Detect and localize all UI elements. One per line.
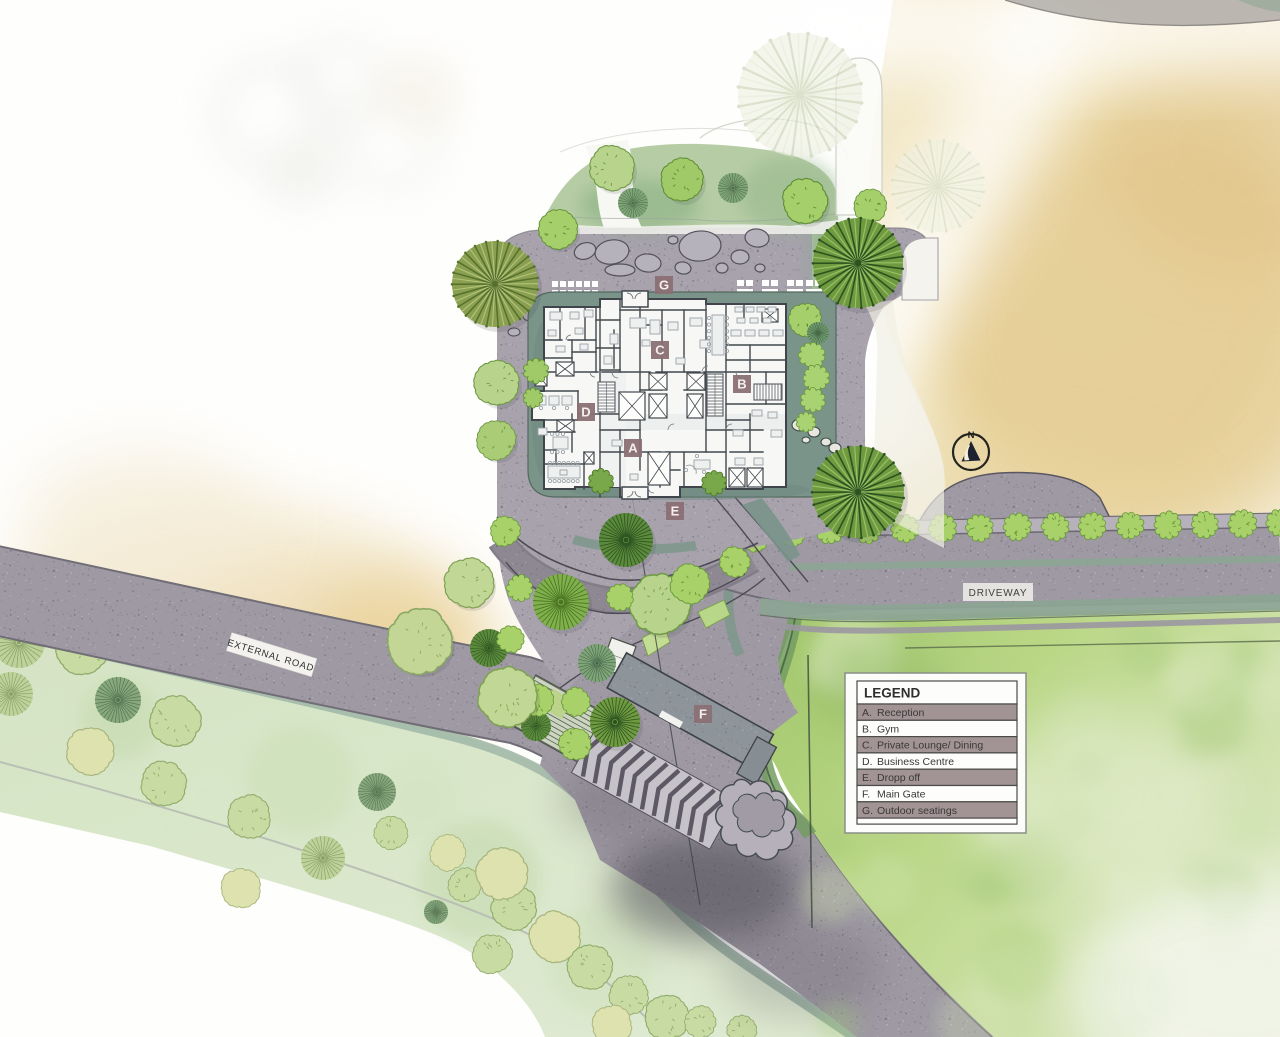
svg-text:C: C (655, 343, 665, 358)
svg-text:N: N (968, 430, 975, 441)
svg-text:A.: A. (862, 707, 872, 719)
svg-text:D: D (581, 405, 590, 420)
svg-text:LEGEND: LEGEND (864, 686, 921, 701)
svg-text:G.: G. (862, 805, 873, 817)
svg-text:F.: F. (862, 789, 870, 801)
svg-text:Dropp off: Dropp off (877, 772, 920, 784)
svg-text:Business Centre: Business Centre (877, 756, 954, 768)
svg-text:A: A (628, 441, 638, 456)
svg-text:E.: E. (862, 772, 872, 784)
svg-text:F: F (699, 707, 707, 722)
svg-text:G: G (659, 278, 669, 293)
svg-text:Private Lounge/ Dining: Private Lounge/ Dining (877, 740, 983, 752)
svg-text:Gym: Gym (877, 723, 899, 735)
svg-text:B.: B. (862, 723, 872, 735)
svg-text:Outdoor seatings: Outdoor seatings (877, 805, 957, 817)
svg-text:DRIVEWAY: DRIVEWAY (969, 588, 1028, 599)
svg-text:C.: C. (862, 740, 873, 752)
svg-text:B: B (737, 377, 746, 392)
svg-text:E: E (671, 504, 680, 519)
svg-text:D.: D. (862, 756, 873, 768)
svg-text:Main Gate: Main Gate (877, 789, 926, 801)
svg-text:Reception: Reception (877, 707, 924, 719)
